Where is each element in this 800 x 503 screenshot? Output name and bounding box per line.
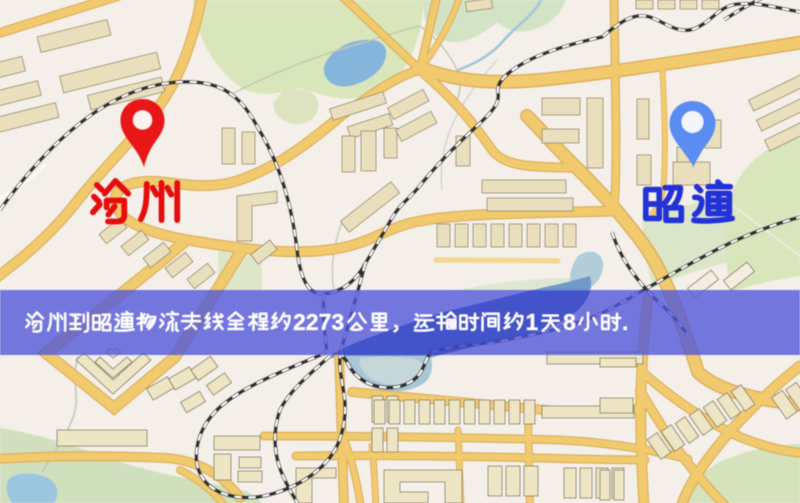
svg-text:1: 1 <box>526 309 539 335</box>
svg-text:.: . <box>622 309 628 335</box>
svg-text:8: 8 <box>563 309 576 335</box>
svg-text:2273: 2273 <box>293 309 344 335</box>
